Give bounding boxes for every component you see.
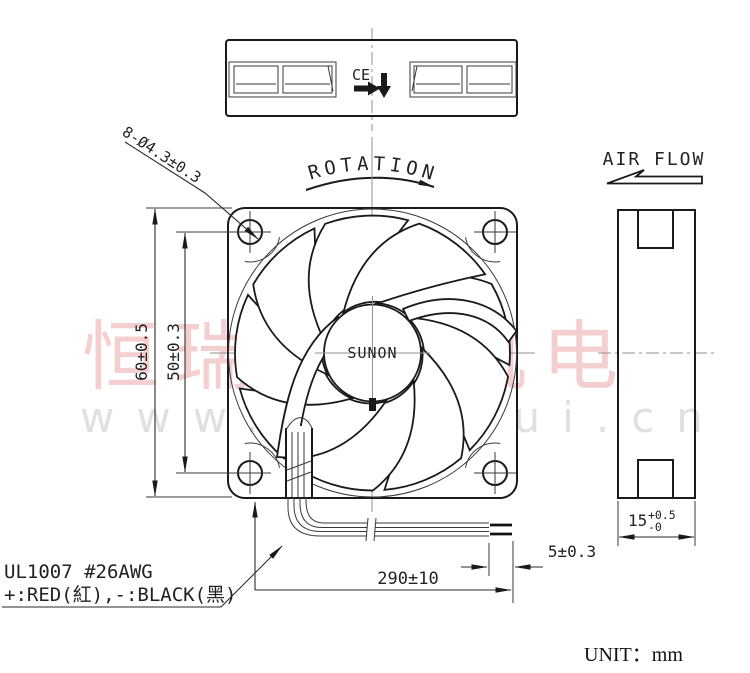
lead-wires <box>288 497 512 541</box>
side-view-hub-top <box>638 210 673 248</box>
rotation-annotation: ROTATION <box>306 153 441 190</box>
fan-front-view: SUNON <box>210 137 535 512</box>
air-flow-annotation: AIR FLOW <box>603 149 706 184</box>
side-view-hub-bottom <box>638 460 673 498</box>
unit-note: UNIT：mm <box>584 644 683 666</box>
frame-size-dim-label: 60±0.5 <box>132 323 151 381</box>
thickness-dim-label: 15 <box>628 511 647 530</box>
air-flow-label: AIR FLOW <box>603 149 706 170</box>
hole-callout: 8-Ø4.3±0.3 <box>119 123 258 239</box>
hole-pitch-dim-label: 50±0.3 <box>164 323 183 381</box>
svg-text:ROTATION: ROTATION <box>306 153 441 186</box>
mounting-holes-dim-label: 8-Ø4.3±0.3 <box>119 123 205 187</box>
wire-spec-callout: UL1007 #26AWG +:RED(紅),-:BLACK(黑) <box>2 546 282 607</box>
fan-top-view: CE <box>226 28 517 131</box>
thickness-minus-tolerance: -0 <box>648 520 662 534</box>
fan-technical-drawing: 恒瑞宏易机电 www.hengrui.cn CE ROTATION <box>0 0 750 673</box>
wire-spec-line2: +:RED(紅),-:BLACK(黑) <box>4 584 236 606</box>
wire-dimensions: 290±10 5±0.3 <box>255 502 596 603</box>
ce-mark-label: CE <box>352 66 370 84</box>
air-flow-arrow-icon <box>607 170 702 184</box>
brand-label: SUNON <box>347 344 397 362</box>
rotation-label: ROTATION <box>306 153 441 186</box>
airflow-direction-arrow-icon <box>377 73 391 98</box>
wire-channel <box>285 418 313 497</box>
strip-length-dim-label: 5±0.3 <box>548 542 596 561</box>
wire-length-dim-label: 290±10 <box>377 569 438 589</box>
hub-wire-exit <box>369 398 376 411</box>
wire-spec-line1: UL1007 #26AWG <box>4 561 153 583</box>
